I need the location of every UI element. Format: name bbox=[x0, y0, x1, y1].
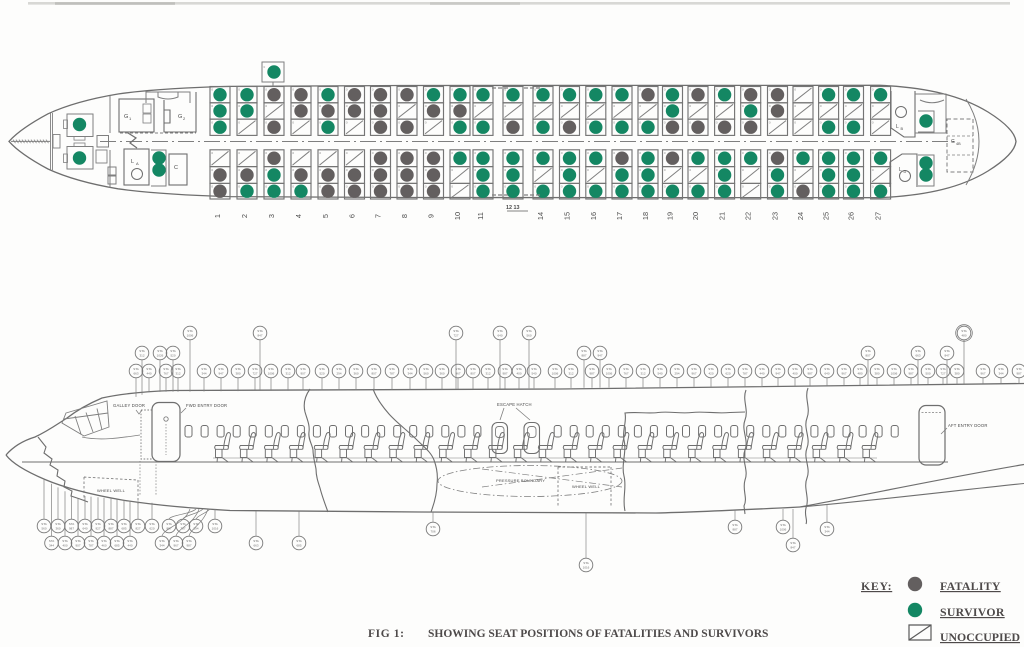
svg-text:o: o bbox=[372, 88, 374, 92]
svg-text:o: o bbox=[211, 151, 213, 155]
svg-text:o: o bbox=[292, 151, 294, 155]
svg-text:o: o bbox=[398, 168, 400, 172]
svg-text:o: o bbox=[872, 88, 874, 92]
svg-text:o: o bbox=[474, 88, 476, 92]
svg-text:23: 23 bbox=[771, 212, 780, 220]
svg-text:o: o bbox=[534, 88, 536, 92]
svg-text:o: o bbox=[689, 104, 691, 108]
svg-text:o: o bbox=[561, 120, 563, 124]
svg-text:o: o bbox=[613, 151, 615, 155]
svg-text:o: o bbox=[319, 120, 321, 124]
svg-text:18: 18 bbox=[641, 212, 650, 220]
svg-text:B: B bbox=[901, 127, 904, 131]
svg-text:o: o bbox=[425, 185, 427, 189]
svg-text:2: 2 bbox=[183, 116, 186, 121]
svg-text:o: o bbox=[534, 185, 536, 189]
svg-text:o: o bbox=[561, 168, 563, 172]
svg-text:1006: 1006 bbox=[606, 371, 613, 375]
svg-text:o: o bbox=[292, 185, 294, 189]
svg-text:o: o bbox=[346, 168, 348, 172]
svg-text:967: 967 bbox=[841, 371, 846, 375]
svg-text:SURVIVOR: SURVIVOR bbox=[940, 605, 1005, 619]
svg-text:847: 847 bbox=[944, 353, 949, 357]
svg-text:o: o bbox=[613, 120, 615, 124]
svg-text:380: 380 bbox=[874, 371, 879, 375]
svg-text:19: 19 bbox=[666, 212, 675, 220]
svg-text:o: o bbox=[372, 120, 374, 124]
svg-text:o: o bbox=[689, 120, 691, 124]
svg-text:2: 2 bbox=[240, 214, 249, 218]
svg-text:o: o bbox=[211, 88, 213, 92]
svg-text:620: 620 bbox=[725, 371, 730, 375]
svg-text:o: o bbox=[820, 168, 822, 172]
svg-text:o: o bbox=[716, 104, 718, 108]
svg-text:o: o bbox=[238, 168, 240, 172]
svg-text:o: o bbox=[639, 120, 641, 124]
svg-text:767: 767 bbox=[623, 371, 628, 375]
svg-text:G: G bbox=[124, 114, 128, 120]
svg-text:420: 420 bbox=[708, 371, 713, 375]
svg-text:20: 20 bbox=[691, 212, 700, 220]
svg-text:o: o bbox=[346, 104, 348, 108]
svg-text:o: o bbox=[398, 104, 400, 108]
svg-text:o: o bbox=[742, 151, 744, 155]
svg-text:o: o bbox=[716, 168, 718, 172]
svg-text:1006: 1006 bbox=[780, 527, 787, 531]
svg-text:947: 947 bbox=[597, 353, 602, 357]
svg-text:o: o bbox=[534, 151, 536, 155]
svg-text:o: o bbox=[587, 104, 589, 108]
svg-text:727: 727 bbox=[940, 371, 945, 375]
svg-text:o: o bbox=[561, 151, 563, 155]
svg-text:807: 807 bbox=[470, 371, 475, 375]
svg-text:344: 344 bbox=[998, 371, 1003, 375]
svg-text:o: o bbox=[845, 88, 847, 92]
svg-text:o: o bbox=[319, 185, 321, 189]
svg-text:440: 440 bbox=[146, 371, 151, 375]
svg-text:o: o bbox=[769, 120, 771, 124]
svg-text:o: o bbox=[872, 151, 874, 155]
svg-text:344: 344 bbox=[159, 543, 164, 547]
svg-text:FWD ENTRY DOOR: FWD ENTRY DOOR bbox=[186, 403, 227, 408]
svg-text:1: 1 bbox=[213, 214, 222, 218]
svg-text:o: o bbox=[845, 120, 847, 124]
svg-text:o: o bbox=[534, 168, 536, 172]
svg-text:L: L bbox=[896, 124, 899, 130]
svg-text:o: o bbox=[211, 104, 213, 108]
svg-text:o: o bbox=[211, 120, 213, 124]
svg-text:520: 520 bbox=[170, 353, 175, 357]
svg-text:o: o bbox=[613, 168, 615, 172]
svg-text:o: o bbox=[820, 185, 822, 189]
svg-text:987: 987 bbox=[186, 543, 191, 547]
svg-text:27: 27 bbox=[874, 212, 883, 220]
svg-text:o: o bbox=[451, 104, 453, 108]
svg-text:WHEEL WELL: WHEEL WELL bbox=[97, 488, 126, 493]
svg-text:1016: 1016 bbox=[212, 526, 219, 530]
svg-text:o: o bbox=[534, 120, 536, 124]
svg-text:380: 380 bbox=[954, 371, 959, 375]
svg-text:947: 947 bbox=[775, 371, 780, 375]
svg-text:o: o bbox=[794, 104, 796, 108]
svg-text:400: 400 bbox=[62, 543, 67, 547]
svg-text:o: o bbox=[639, 151, 641, 155]
svg-text:o: o bbox=[474, 104, 476, 108]
svg-text:1: 1 bbox=[129, 116, 132, 121]
svg-text:o: o bbox=[794, 120, 796, 124]
svg-text:987: 987 bbox=[807, 371, 812, 375]
svg-text:26: 26 bbox=[847, 212, 856, 220]
svg-text:o: o bbox=[451, 151, 453, 155]
svg-text:o: o bbox=[639, 88, 641, 92]
svg-text:o: o bbox=[265, 168, 267, 172]
svg-text:907: 907 bbox=[75, 543, 80, 547]
svg-text:o: o bbox=[504, 104, 506, 108]
svg-text:24: 24 bbox=[796, 212, 805, 220]
svg-text:o: o bbox=[504, 168, 506, 172]
svg-text:360: 360 bbox=[55, 526, 60, 530]
svg-text:o: o bbox=[742, 120, 744, 124]
svg-text:685: 685 bbox=[296, 543, 301, 547]
svg-text:787: 787 bbox=[88, 543, 93, 547]
svg-text:3: 3 bbox=[267, 214, 276, 218]
svg-text:1006: 1006 bbox=[891, 371, 898, 375]
svg-text:o: o bbox=[265, 185, 267, 189]
svg-text:o: o bbox=[587, 168, 589, 172]
svg-text:o: o bbox=[872, 120, 874, 124]
svg-text:887: 887 bbox=[108, 526, 113, 530]
svg-text:312: 312 bbox=[285, 371, 290, 375]
svg-text:o: o bbox=[716, 151, 718, 155]
svg-text:9: 9 bbox=[427, 214, 436, 218]
svg-text:4: 4 bbox=[294, 214, 303, 218]
svg-text:o: o bbox=[398, 88, 400, 92]
svg-text:400: 400 bbox=[792, 371, 797, 375]
svg-text:o: o bbox=[664, 151, 666, 155]
svg-text:GALLEY DOOR: GALLEY DOOR bbox=[113, 403, 145, 408]
svg-text:663: 663 bbox=[253, 543, 258, 547]
svg-text:727: 727 bbox=[453, 333, 458, 337]
svg-text:847: 847 bbox=[790, 545, 795, 549]
svg-text:927: 927 bbox=[95, 526, 100, 530]
svg-text:o: o bbox=[820, 88, 822, 92]
svg-text:o: o bbox=[872, 168, 874, 172]
svg-text:o: o bbox=[742, 104, 744, 108]
svg-text:o: o bbox=[587, 151, 589, 155]
svg-text:360: 360 bbox=[353, 371, 358, 375]
svg-text:o: o bbox=[845, 185, 847, 189]
svg-text:294: 294 bbox=[674, 371, 679, 375]
svg-text:o: o bbox=[716, 185, 718, 189]
svg-text:o: o bbox=[474, 168, 476, 172]
svg-text:o: o bbox=[451, 168, 453, 172]
svg-text:o: o bbox=[561, 185, 563, 189]
svg-text:o: o bbox=[716, 88, 718, 92]
svg-text:o: o bbox=[872, 185, 874, 189]
svg-text:A: A bbox=[136, 161, 139, 166]
svg-text:1016: 1016 bbox=[583, 565, 590, 569]
svg-text:o: o bbox=[346, 151, 348, 155]
svg-text:440: 440 bbox=[759, 371, 764, 375]
svg-text:o: o bbox=[561, 88, 563, 92]
svg-text:787: 787 bbox=[389, 371, 394, 375]
svg-text:787: 787 bbox=[180, 526, 185, 530]
svg-text:11: 11 bbox=[476, 212, 485, 220]
svg-text:o: o bbox=[769, 185, 771, 189]
svg-text:o: o bbox=[689, 168, 691, 172]
svg-text:o: o bbox=[742, 168, 744, 172]
svg-text:620: 620 bbox=[149, 526, 154, 530]
svg-text:o: o bbox=[474, 151, 476, 155]
svg-text:o: o bbox=[292, 120, 294, 124]
svg-text:o: o bbox=[845, 151, 847, 155]
svg-text:o: o bbox=[794, 88, 796, 92]
svg-text:c: c bbox=[264, 65, 266, 69]
svg-text:344: 344 bbox=[824, 529, 829, 533]
svg-text:17: 17 bbox=[615, 212, 624, 220]
svg-text:ESCAPE HATCH: ESCAPE HATCH bbox=[497, 402, 532, 407]
svg-text:o: o bbox=[372, 151, 374, 155]
svg-text:560: 560 bbox=[41, 526, 46, 530]
svg-text:706: 706 bbox=[430, 529, 435, 533]
svg-text:22: 22 bbox=[744, 212, 753, 220]
svg-text:o: o bbox=[265, 151, 267, 155]
svg-text:480: 480 bbox=[857, 371, 862, 375]
svg-text:o: o bbox=[613, 104, 615, 108]
svg-text:847: 847 bbox=[257, 333, 262, 337]
svg-text:o: o bbox=[425, 168, 427, 172]
svg-text:987: 987 bbox=[69, 526, 74, 530]
svg-text:663: 663 bbox=[133, 371, 138, 375]
svg-text:FATALITY: FATALITY bbox=[940, 579, 1001, 593]
svg-text:o: o bbox=[346, 88, 348, 92]
svg-text:WHEEL WELL: WHEEL WELL bbox=[572, 484, 601, 489]
svg-text:o: o bbox=[769, 88, 771, 92]
svg-text:520: 520 bbox=[319, 371, 324, 375]
svg-text:16: 16 bbox=[589, 212, 598, 220]
svg-text:o: o bbox=[238, 151, 240, 155]
svg-text:o: o bbox=[587, 120, 589, 124]
svg-text:6: 6 bbox=[348, 214, 357, 218]
svg-text:480: 480 bbox=[961, 333, 966, 337]
svg-text:o: o bbox=[451, 120, 453, 124]
svg-text:312: 312 bbox=[175, 371, 180, 375]
svg-text:21: 21 bbox=[718, 212, 727, 220]
svg-text:o: o bbox=[820, 151, 822, 155]
svg-text:827: 827 bbox=[135, 526, 140, 530]
svg-text:o: o bbox=[319, 168, 321, 172]
svg-text:987: 987 bbox=[589, 371, 594, 375]
svg-text:AFT ENTRY DOOR: AFT ENTRY DOOR bbox=[948, 423, 988, 428]
svg-text:12 13: 12 13 bbox=[506, 205, 520, 211]
svg-text:o: o bbox=[319, 151, 321, 155]
svg-text:540: 540 bbox=[531, 371, 536, 375]
svg-text:987: 987 bbox=[1016, 371, 1021, 375]
svg-text:o: o bbox=[639, 185, 641, 189]
svg-text:887: 887 bbox=[581, 353, 586, 357]
svg-text:807: 807 bbox=[371, 371, 376, 375]
svg-text:360: 360 bbox=[439, 371, 444, 375]
svg-text:8: 8 bbox=[400, 214, 409, 218]
svg-text:5: 5 bbox=[321, 214, 330, 218]
svg-text:o: o bbox=[742, 185, 744, 189]
svg-text:o: o bbox=[474, 120, 476, 124]
svg-text:o: o bbox=[845, 104, 847, 108]
svg-text:o: o bbox=[664, 120, 666, 124]
svg-text:907: 907 bbox=[300, 371, 305, 375]
svg-text:o: o bbox=[319, 88, 321, 92]
svg-text:807: 807 bbox=[865, 353, 870, 357]
svg-text:o: o bbox=[820, 104, 822, 108]
svg-text:o: o bbox=[292, 104, 294, 108]
svg-text:o: o bbox=[238, 185, 240, 189]
svg-text:727: 727 bbox=[252, 371, 257, 375]
svg-text:o: o bbox=[639, 168, 641, 172]
svg-text:o: o bbox=[398, 185, 400, 189]
svg-text:o: o bbox=[238, 88, 240, 92]
svg-text:o: o bbox=[211, 185, 213, 189]
svg-text:o: o bbox=[319, 104, 321, 108]
svg-text:344: 344 bbox=[201, 371, 206, 375]
svg-text:887: 887 bbox=[732, 527, 737, 531]
svg-text:380: 380 bbox=[235, 371, 240, 375]
svg-text:1006: 1006 bbox=[187, 333, 194, 337]
svg-text:G: G bbox=[951, 139, 955, 145]
svg-text:o: o bbox=[265, 104, 267, 108]
svg-text:UNOCCUPIED: UNOCCUPIED bbox=[940, 630, 1020, 644]
svg-text:o: o bbox=[372, 104, 374, 108]
svg-text:o: o bbox=[820, 120, 822, 124]
svg-text:14: 14 bbox=[536, 212, 545, 220]
svg-text:o: o bbox=[664, 168, 666, 172]
svg-text:o: o bbox=[769, 104, 771, 108]
svg-text:o: o bbox=[372, 168, 374, 172]
svg-text:o: o bbox=[425, 88, 427, 92]
svg-text:987: 987 bbox=[908, 371, 913, 375]
svg-text:25: 25 bbox=[822, 212, 831, 220]
svg-text:10: 10 bbox=[453, 212, 462, 220]
svg-text:o: o bbox=[534, 104, 536, 108]
svg-text:o: o bbox=[398, 120, 400, 124]
svg-text:o: o bbox=[238, 104, 240, 108]
svg-text:L: L bbox=[131, 159, 134, 165]
svg-text:o: o bbox=[794, 168, 796, 172]
svg-text:o: o bbox=[504, 120, 506, 124]
svg-text:o: o bbox=[292, 88, 294, 92]
svg-text:663: 663 bbox=[915, 353, 920, 357]
svg-text:685: 685 bbox=[114, 543, 119, 547]
svg-text:o: o bbox=[265, 88, 267, 92]
svg-text:G: G bbox=[178, 114, 182, 120]
svg-text:o: o bbox=[425, 104, 427, 108]
svg-text:640: 640 bbox=[82, 526, 87, 530]
svg-text:C: C bbox=[174, 165, 178, 171]
svg-text:KEY:: KEY: bbox=[861, 579, 892, 593]
svg-text:967: 967 bbox=[691, 371, 696, 375]
svg-text:o: o bbox=[292, 168, 294, 172]
svg-text:767: 767 bbox=[163, 371, 168, 375]
svg-text:312: 312 bbox=[568, 371, 573, 375]
svg-text:1026: 1026 bbox=[157, 353, 164, 357]
svg-text:o: o bbox=[587, 185, 589, 189]
svg-text:344: 344 bbox=[49, 543, 54, 547]
svg-text:o: o bbox=[474, 185, 476, 189]
svg-text:o: o bbox=[769, 168, 771, 172]
svg-text:967: 967 bbox=[173, 543, 178, 547]
svg-text:1006: 1006 bbox=[552, 371, 559, 375]
svg-text:o: o bbox=[451, 88, 453, 92]
svg-text:947: 947 bbox=[218, 371, 223, 375]
svg-text:o: o bbox=[716, 120, 718, 124]
svg-text:o: o bbox=[451, 185, 453, 189]
svg-text:o: o bbox=[742, 88, 744, 92]
svg-text:o: o bbox=[238, 120, 240, 124]
svg-text:PRESSURE BOUNDARY: PRESSURE BOUNDARY bbox=[496, 478, 545, 483]
svg-text:o: o bbox=[346, 120, 348, 124]
svg-text:440: 440 bbox=[127, 543, 132, 547]
svg-text:o: o bbox=[664, 104, 666, 108]
svg-text:o: o bbox=[872, 104, 874, 108]
svg-text:o: o bbox=[372, 185, 374, 189]
svg-text:312: 312 bbox=[485, 371, 490, 375]
svg-text:FIG 1:: FIG 1: bbox=[368, 628, 405, 640]
svg-text:1006: 1006 bbox=[268, 371, 275, 375]
svg-text:D: D bbox=[904, 170, 907, 174]
svg-text:o: o bbox=[794, 185, 796, 189]
svg-text:540: 540 bbox=[657, 371, 662, 375]
svg-text:o: o bbox=[664, 185, 666, 189]
svg-text:o: o bbox=[689, 88, 691, 92]
svg-text:o: o bbox=[425, 120, 427, 124]
svg-text:SHOWING SEAT POSITIONS OF FATA: SHOWING SEAT POSITIONS OF FATALITIES AND… bbox=[428, 628, 768, 640]
svg-text:o: o bbox=[639, 104, 641, 108]
svg-text:15: 15 bbox=[563, 212, 572, 220]
svg-text:967: 967 bbox=[980, 371, 985, 375]
svg-text:640: 640 bbox=[497, 333, 502, 337]
svg-text:o: o bbox=[587, 88, 589, 92]
svg-text:312: 312 bbox=[640, 371, 645, 375]
svg-text:500: 500 bbox=[925, 371, 930, 375]
svg-text:o: o bbox=[689, 151, 691, 155]
svg-text:560: 560 bbox=[526, 333, 531, 337]
svg-text:o: o bbox=[845, 168, 847, 172]
svg-text:o: o bbox=[613, 185, 615, 189]
svg-text:685: 685 bbox=[121, 526, 126, 530]
svg-text:4B: 4B bbox=[956, 142, 961, 146]
svg-text:o: o bbox=[425, 151, 427, 155]
svg-text:o: o bbox=[504, 151, 506, 155]
svg-text:294: 294 bbox=[336, 371, 341, 375]
svg-text:560: 560 bbox=[423, 371, 428, 375]
svg-text:o: o bbox=[398, 151, 400, 155]
svg-text:o: o bbox=[265, 120, 267, 124]
svg-text:o: o bbox=[504, 185, 506, 189]
svg-text:460: 460 bbox=[101, 543, 106, 547]
svg-text:400: 400 bbox=[516, 371, 521, 375]
svg-text:o: o bbox=[769, 151, 771, 155]
svg-text:787: 787 bbox=[742, 371, 747, 375]
svg-text:987: 987 bbox=[502, 371, 507, 375]
svg-text:L: L bbox=[899, 167, 902, 173]
svg-text:312: 312 bbox=[139, 353, 144, 357]
svg-text:o: o bbox=[664, 88, 666, 92]
svg-text:o: o bbox=[794, 151, 796, 155]
svg-text:o: o bbox=[689, 185, 691, 189]
svg-text:o: o bbox=[211, 168, 213, 172]
svg-text:o: o bbox=[346, 185, 348, 189]
svg-text:7: 7 bbox=[374, 214, 383, 218]
svg-text:o: o bbox=[613, 88, 615, 92]
